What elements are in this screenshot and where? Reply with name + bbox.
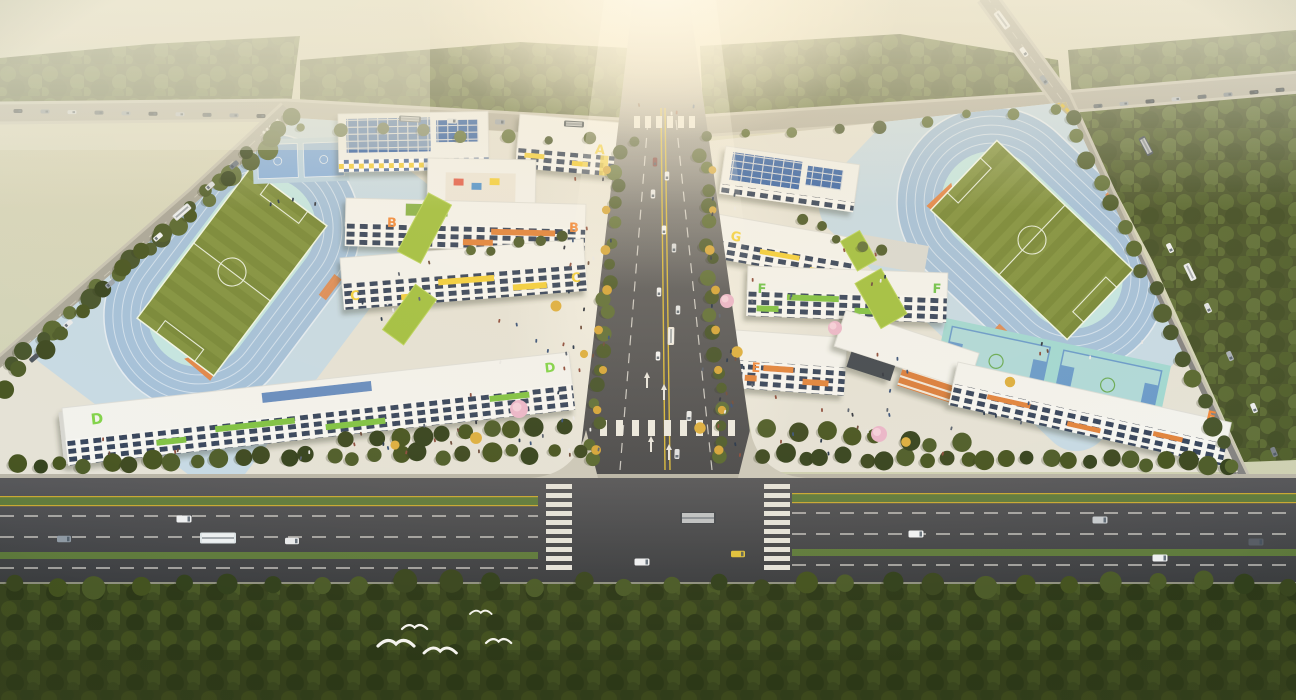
autumn-tree <box>594 326 603 335</box>
tree <box>874 451 893 470</box>
tree <box>612 179 626 193</box>
tree <box>34 459 48 473</box>
tree <box>1198 456 1217 475</box>
tree <box>1069 129 1083 143</box>
car <box>909 531 924 538</box>
windshield <box>127 112 130 114</box>
building-label-c: C <box>571 271 582 287</box>
tree <box>414 427 434 447</box>
windshield <box>100 112 103 114</box>
car <box>665 171 670 180</box>
tree <box>584 132 596 144</box>
building-label-b: B <box>569 221 579 236</box>
tree <box>484 420 501 437</box>
tree <box>711 574 728 591</box>
windshield <box>73 111 76 113</box>
tree <box>75 459 90 474</box>
tree <box>1060 452 1077 469</box>
tree <box>454 131 466 143</box>
autumn-tree <box>709 166 717 174</box>
person <box>734 207 736 211</box>
car-body <box>653 157 658 166</box>
car-body <box>657 287 662 296</box>
car <box>285 538 299 545</box>
tree <box>176 575 193 592</box>
tree <box>876 244 887 255</box>
tree <box>1094 175 1110 191</box>
person <box>983 411 985 415</box>
tree <box>741 129 750 138</box>
tree <box>922 573 944 595</box>
person <box>710 256 712 260</box>
building-label-d: D <box>90 409 104 428</box>
tree <box>962 110 971 119</box>
tree <box>706 347 722 363</box>
car <box>653 157 658 166</box>
bus-windows <box>670 329 672 343</box>
windshield <box>658 292 661 295</box>
tree <box>235 449 252 466</box>
tree <box>716 383 727 394</box>
bottom-forest <box>0 584 1296 700</box>
tree <box>217 574 238 595</box>
tree <box>811 449 828 466</box>
car-body <box>122 111 131 115</box>
person <box>577 283 579 287</box>
tree <box>221 171 236 186</box>
tree <box>998 450 1015 467</box>
tree <box>1020 451 1034 465</box>
windshield <box>1164 556 1167 561</box>
tree <box>1157 451 1175 469</box>
tree <box>1043 449 1061 467</box>
car <box>495 119 505 125</box>
car <box>177 516 192 523</box>
person <box>568 448 570 452</box>
tree <box>702 214 716 228</box>
windshield <box>235 114 238 116</box>
car <box>176 112 185 116</box>
bus-windows <box>682 517 714 519</box>
blossom-tree <box>830 323 837 330</box>
car <box>14 109 23 113</box>
autumn-tree <box>711 286 720 295</box>
car-body <box>203 113 212 117</box>
tree <box>486 247 495 256</box>
person <box>308 450 310 454</box>
car <box>149 112 158 116</box>
tree <box>796 571 818 593</box>
person <box>896 357 898 361</box>
autumn-tree <box>593 406 601 414</box>
tree <box>832 235 841 244</box>
car-body <box>95 111 104 115</box>
autumn-tree <box>551 301 562 312</box>
tree <box>349 576 368 595</box>
car <box>1153 555 1168 562</box>
autumn-tree <box>602 206 611 215</box>
car <box>635 559 650 566</box>
car <box>676 305 681 314</box>
tree <box>1016 575 1035 594</box>
car-body <box>1171 97 1180 102</box>
person <box>792 432 794 436</box>
autumn-tree <box>602 285 612 295</box>
autumn-tree <box>390 440 399 449</box>
person <box>711 304 713 308</box>
curb-top <box>0 474 1296 478</box>
tree <box>1051 104 1062 115</box>
person <box>610 239 612 243</box>
person <box>719 314 721 318</box>
car-body <box>1275 88 1284 93</box>
tree <box>393 569 417 593</box>
person <box>821 408 823 412</box>
car-body <box>68 110 77 114</box>
tree <box>1077 152 1095 170</box>
car <box>656 351 661 360</box>
car <box>203 113 212 117</box>
tree <box>263 130 281 148</box>
tree <box>536 236 546 246</box>
windshield <box>657 356 660 359</box>
tree <box>1118 220 1133 235</box>
tree <box>240 146 253 159</box>
person <box>423 424 425 428</box>
windshield <box>1202 96 1205 98</box>
tree <box>545 136 553 144</box>
car <box>41 110 50 114</box>
car-body <box>686 411 691 421</box>
autumn-tree <box>601 245 611 255</box>
car <box>68 110 77 114</box>
windshield <box>677 310 680 313</box>
tree <box>1153 304 1172 323</box>
tree <box>920 453 935 468</box>
windshield <box>673 248 676 251</box>
tree <box>14 342 32 360</box>
car <box>230 113 239 117</box>
tree <box>264 576 281 593</box>
tree <box>191 455 204 468</box>
tree <box>162 453 180 471</box>
car <box>686 411 691 421</box>
tree <box>48 578 67 597</box>
tree <box>702 184 715 197</box>
campus-rendering: A B B C C D D E E F F G <box>0 0 1296 700</box>
car-body <box>230 113 239 117</box>
tree <box>132 577 151 596</box>
tree <box>103 453 122 472</box>
person <box>573 345 575 349</box>
tree <box>133 243 149 259</box>
tree <box>1133 264 1147 278</box>
tree <box>377 122 389 134</box>
autumn-tree <box>1005 377 1015 387</box>
building-label-b: B <box>387 216 397 231</box>
tree <box>482 442 502 462</box>
tree <box>1102 195 1118 211</box>
windshield <box>67 537 70 542</box>
tree <box>835 124 845 134</box>
person <box>884 275 886 279</box>
person <box>574 177 576 181</box>
tree <box>1203 417 1222 436</box>
windshield <box>652 194 655 197</box>
taxi <box>731 551 745 558</box>
tree <box>601 305 615 319</box>
car-body <box>1197 94 1206 99</box>
tree <box>883 572 903 592</box>
tree <box>1083 455 1097 469</box>
car <box>257 114 266 118</box>
autumn-tree <box>591 445 601 455</box>
person <box>1089 355 1091 359</box>
tree <box>1194 571 1213 590</box>
tree <box>1066 110 1081 125</box>
building-label-d: D <box>544 360 557 376</box>
car <box>1249 539 1264 546</box>
person <box>270 202 272 206</box>
windshield <box>1104 518 1107 523</box>
car <box>1119 101 1128 106</box>
tree <box>513 237 524 248</box>
autumn-tree <box>711 326 720 335</box>
tree <box>574 445 587 458</box>
tree <box>776 443 796 463</box>
car <box>1171 97 1180 102</box>
car-body <box>495 119 505 125</box>
windshield <box>154 113 157 115</box>
tree <box>334 123 348 137</box>
windshield <box>1260 540 1263 545</box>
person <box>542 434 544 438</box>
person <box>580 326 582 330</box>
tree <box>1225 460 1239 474</box>
tree <box>755 449 770 464</box>
tree <box>1150 281 1164 295</box>
tree <box>466 245 476 255</box>
tree <box>922 116 934 128</box>
tree <box>952 433 971 452</box>
car-body <box>1223 92 1232 97</box>
windshield <box>295 539 298 544</box>
tree <box>521 447 539 465</box>
car-body <box>41 110 50 114</box>
tree <box>417 124 429 136</box>
bus <box>200 533 236 544</box>
car-body <box>662 225 667 234</box>
tree <box>1163 325 1179 341</box>
windshield <box>741 552 744 557</box>
tree <box>1060 576 1078 594</box>
windshield <box>208 114 211 116</box>
tree <box>702 308 716 322</box>
person <box>482 416 484 420</box>
tree <box>297 446 313 462</box>
tree <box>209 449 228 468</box>
tree <box>76 304 90 318</box>
windshield <box>46 111 49 113</box>
tree <box>82 576 106 600</box>
tree <box>615 579 632 596</box>
tree <box>506 444 519 457</box>
tree <box>818 421 837 440</box>
tree <box>502 129 516 143</box>
tree <box>700 270 716 286</box>
windshield <box>646 560 649 565</box>
tree <box>716 420 727 431</box>
car-body <box>656 351 661 360</box>
bus <box>399 115 421 122</box>
tree <box>594 417 607 430</box>
tree <box>252 446 270 464</box>
building-label-c: C <box>350 289 361 305</box>
person <box>108 451 110 455</box>
car-body <box>676 305 681 314</box>
blossom-tree <box>722 296 729 303</box>
car <box>662 225 667 234</box>
tree <box>328 448 343 463</box>
car-body <box>447 118 457 124</box>
tree <box>345 452 359 466</box>
tree <box>757 419 776 438</box>
tree <box>36 340 55 359</box>
person <box>735 357 737 361</box>
tree <box>524 417 543 436</box>
tree <box>1179 451 1199 471</box>
tree <box>922 438 936 452</box>
car <box>1275 88 1284 93</box>
building-label-f: F <box>757 282 766 297</box>
car-body <box>257 114 266 118</box>
tree <box>692 148 707 163</box>
person <box>877 353 879 357</box>
person <box>568 290 570 294</box>
tree <box>1007 108 1019 120</box>
tree <box>1198 394 1213 409</box>
tree <box>753 579 770 596</box>
tree <box>974 450 994 470</box>
windshield <box>666 176 669 179</box>
person <box>995 414 997 418</box>
car-body <box>665 171 670 180</box>
car-body <box>1249 90 1258 95</box>
autumn-tree <box>714 445 723 454</box>
tree <box>1234 574 1254 594</box>
car <box>1093 517 1108 524</box>
car-body <box>1119 101 1128 106</box>
person <box>752 278 754 282</box>
car-body <box>149 112 158 116</box>
windshield <box>1124 102 1127 104</box>
car-body <box>674 449 679 459</box>
tree <box>114 259 131 276</box>
car-body <box>1145 99 1154 104</box>
windshield <box>262 115 265 117</box>
person <box>587 261 589 265</box>
tree <box>974 576 997 599</box>
tree <box>6 575 23 592</box>
person <box>608 336 610 340</box>
tree <box>817 221 827 231</box>
person <box>589 428 591 432</box>
building-label-f: F <box>932 282 941 297</box>
tree <box>604 259 615 270</box>
windshield <box>1176 98 1179 100</box>
windshield <box>181 113 184 115</box>
windshield <box>687 417 690 420</box>
tree <box>296 123 304 131</box>
tree <box>1100 571 1122 593</box>
bus <box>564 120 584 127</box>
person <box>382 442 384 446</box>
person <box>535 339 537 343</box>
autumn-tree <box>731 346 742 357</box>
person <box>882 373 884 377</box>
tree <box>701 131 711 141</box>
bus-windows <box>202 537 234 539</box>
tree <box>1122 451 1140 469</box>
person <box>519 438 521 442</box>
autumn-tree <box>599 366 607 374</box>
tree <box>835 447 852 464</box>
windshield <box>1228 93 1231 95</box>
tree <box>843 427 861 445</box>
tree <box>502 421 520 439</box>
tree <box>1175 351 1191 367</box>
tree <box>609 216 621 228</box>
windshield <box>19 110 22 112</box>
tree <box>873 121 886 134</box>
car <box>672 243 677 252</box>
person <box>1039 352 1041 356</box>
autumn-tree <box>714 366 722 374</box>
person <box>780 440 782 444</box>
tree <box>940 451 955 466</box>
tree <box>590 377 605 392</box>
person <box>478 449 480 453</box>
person <box>569 453 571 457</box>
person <box>602 177 604 181</box>
autumn-tree <box>694 422 705 433</box>
tree <box>575 572 593 590</box>
car <box>651 189 656 198</box>
tree <box>857 241 868 252</box>
person <box>671 111 673 115</box>
tree <box>436 451 451 466</box>
windshield <box>501 121 504 124</box>
tree <box>613 145 628 160</box>
windshield <box>675 455 678 458</box>
person <box>362 301 364 305</box>
tree <box>526 579 544 597</box>
tree <box>143 450 163 470</box>
tree <box>1217 435 1230 448</box>
windshield <box>1098 105 1101 107</box>
tree <box>1103 449 1120 466</box>
tree <box>10 361 26 377</box>
tree <box>1139 458 1153 472</box>
autumn-tree <box>705 245 715 255</box>
tree <box>8 454 27 473</box>
car <box>95 111 104 115</box>
tree <box>1150 573 1167 590</box>
bus <box>680 512 716 524</box>
tree <box>836 574 854 592</box>
autumn-tree <box>470 432 482 444</box>
person <box>676 111 678 115</box>
